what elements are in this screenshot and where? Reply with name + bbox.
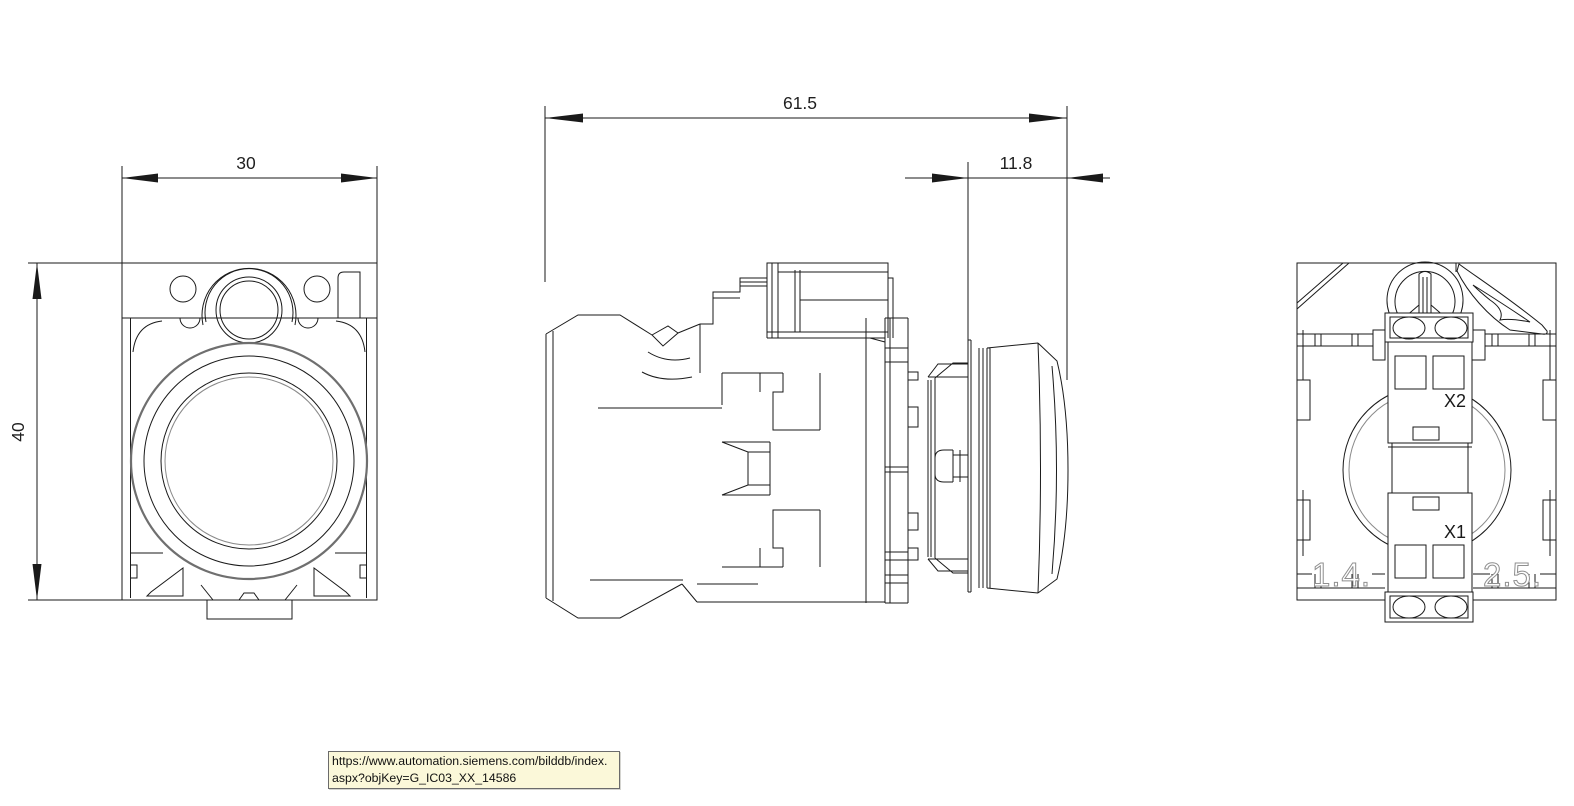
dim-total-depth: 61.5 xyxy=(545,93,1067,380)
rear-label-x2: X2 xyxy=(1444,391,1466,411)
rear-module-clip-left xyxy=(1373,330,1385,360)
rear-module-clip-right xyxy=(1472,330,1485,360)
dimension-drawing-svg: 30 40 61.5 11.8 xyxy=(0,0,1574,806)
front-bottom-details xyxy=(131,553,367,600)
front-inner-walls xyxy=(122,318,377,598)
side-holder-internals xyxy=(697,318,885,603)
rear-view: X2 X1 1.4. 2.5. xyxy=(1297,262,1556,622)
dim-11-arrow-right xyxy=(1067,174,1103,183)
dim-40-arrow-top xyxy=(33,263,42,299)
front-band-notches xyxy=(180,318,318,328)
dim-30-arrow-left xyxy=(122,174,158,183)
dim-61-arrow-left xyxy=(545,114,583,123)
dim-front-width: 30 xyxy=(122,153,377,263)
side-mounting-flange xyxy=(870,318,908,603)
front-lamp-circle-outer xyxy=(216,277,282,343)
side-view xyxy=(546,263,1068,618)
dim-61-arrow-right xyxy=(1029,114,1067,123)
dim-30-lines xyxy=(122,166,377,263)
front-frame-corner-arcs xyxy=(133,321,365,352)
dim-front-height-label: 40 xyxy=(8,422,28,442)
dim-61-lines xyxy=(545,106,1067,380)
dim-30-arrow-right xyxy=(341,174,377,183)
rear-topleft-chamfer xyxy=(1297,263,1349,309)
side-top-steps-and-tower xyxy=(700,263,893,340)
technical-drawing-canvas: 30 40 61.5 11.8 xyxy=(0,0,1574,806)
url-tooltip: https://www.automation.siemens.com/bildd… xyxy=(328,751,620,789)
front-button-face-circle xyxy=(161,373,337,549)
front-bezel-circle-1 xyxy=(131,343,367,579)
dim-total-depth-label: 61.5 xyxy=(783,93,817,113)
front-screw-hole-left xyxy=(170,276,196,302)
rear-label-x1: X1 xyxy=(1444,522,1466,542)
url-tooltip-line2: aspx?objKey=G_IC03_XX_14586 xyxy=(332,770,616,787)
front-view xyxy=(122,263,377,619)
dim-head-depth: 11.8 xyxy=(905,153,1110,346)
url-tooltip-line1: https://www.automation.siemens.com/bildd… xyxy=(332,753,616,770)
side-flange-tabs xyxy=(908,372,918,560)
front-button-face-inner xyxy=(165,377,333,545)
dim-11-arrow-left xyxy=(932,174,968,183)
dim-head-depth-label: 11.8 xyxy=(1000,153,1033,173)
dim-40-arrow-bottom xyxy=(33,564,42,600)
rear-marking-left: 1.4. xyxy=(1312,556,1371,593)
front-screw-hole-right xyxy=(304,276,330,302)
front-key-step xyxy=(338,272,360,318)
side-contact-block xyxy=(546,315,722,618)
rear-module-mid-block xyxy=(1392,443,1468,493)
dim-front-height: 40 xyxy=(8,263,122,600)
front-lamp-circle-inner xyxy=(220,281,278,339)
dim-front-width-label: 30 xyxy=(236,153,256,173)
dim-11-lines xyxy=(905,162,1110,346)
front-bezel-circle-2 xyxy=(144,356,354,566)
rear-marking-right: 2.5. xyxy=(1483,556,1542,593)
dim-40-lines xyxy=(28,263,122,600)
front-bottom-tab xyxy=(207,600,292,619)
side-head-and-lens xyxy=(928,340,1068,593)
